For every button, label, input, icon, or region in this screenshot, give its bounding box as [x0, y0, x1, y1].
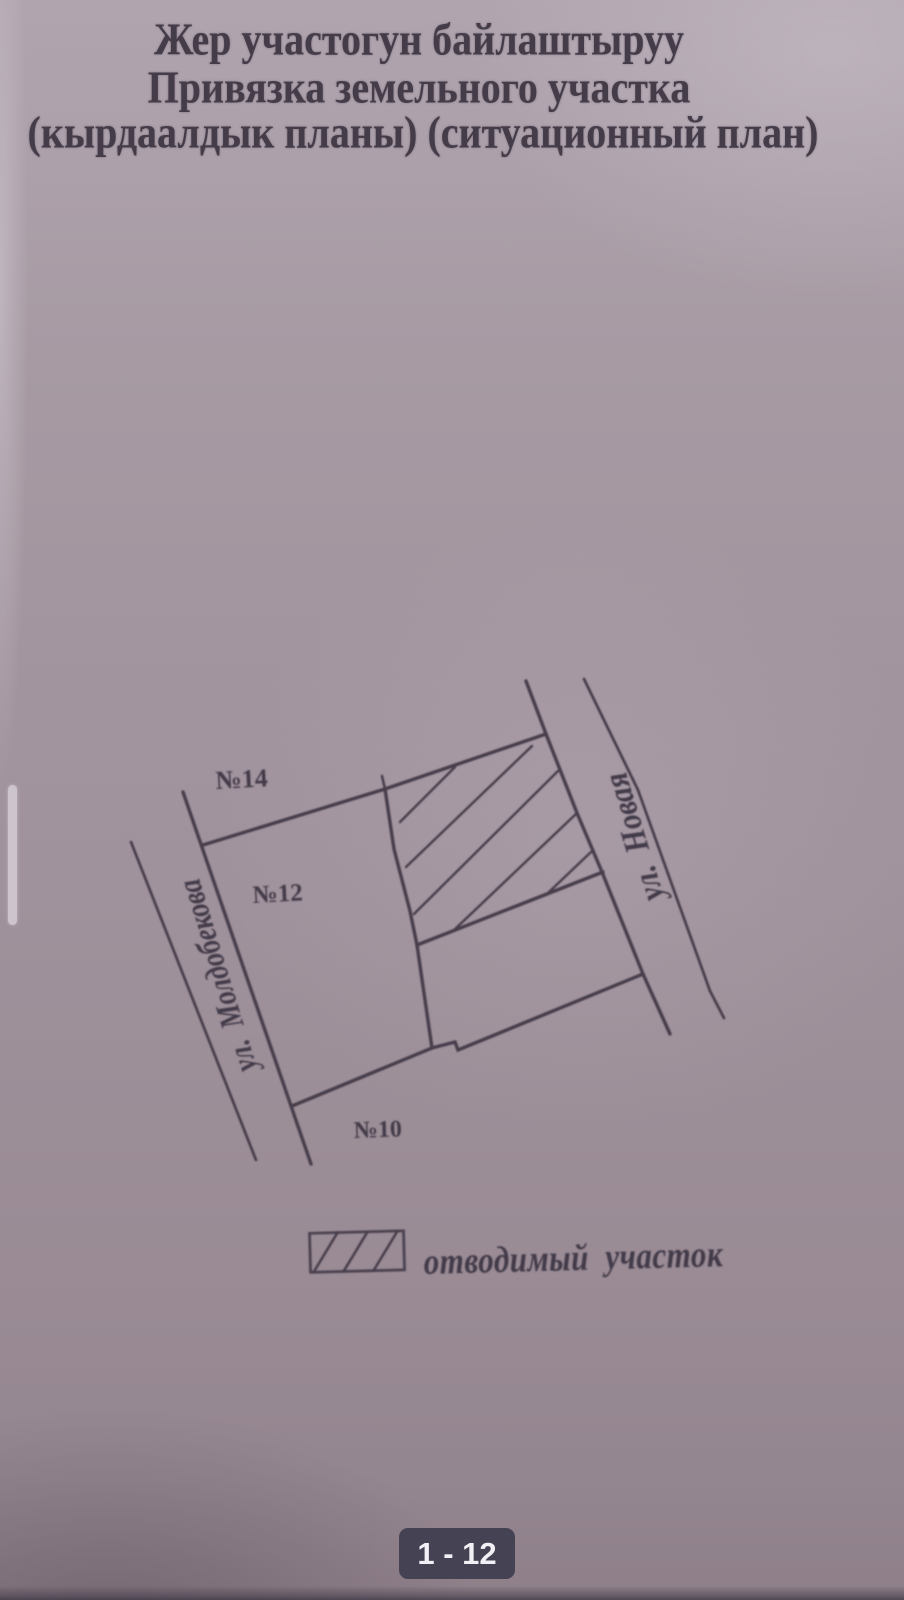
svg-text:№10: №10 — [353, 1116, 402, 1144]
svg-text:отводимый участок: отводимый участок — [423, 1234, 724, 1283]
svg-text:№14: №14 — [215, 763, 269, 795]
svg-text:№12: №12 — [252, 879, 303, 909]
